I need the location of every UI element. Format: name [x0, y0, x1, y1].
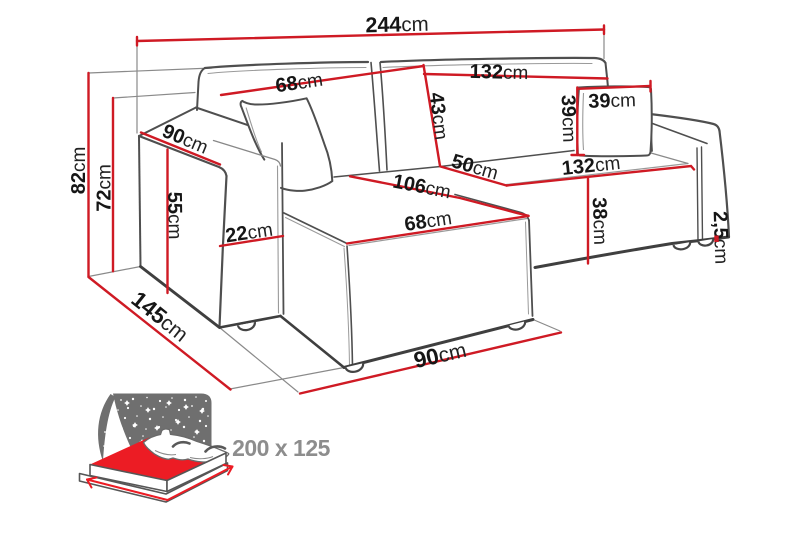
svg-text:72cm: 72cm — [94, 164, 116, 212]
svg-text:132cm: 132cm — [469, 61, 528, 84]
svg-text:244cm: 244cm — [365, 12, 429, 38]
svg-text:55cm: 55cm — [163, 192, 186, 240]
svg-text:82cm: 82cm — [68, 147, 90, 195]
svg-text:38cm: 38cm — [588, 197, 612, 245]
svg-text:200 x 125: 200 x 125 — [232, 435, 331, 461]
svg-text:39cm: 39cm — [557, 94, 581, 142]
svg-text:2,5cm: 2,5cm — [709, 211, 733, 265]
svg-text:39cm: 39cm — [588, 89, 636, 113]
